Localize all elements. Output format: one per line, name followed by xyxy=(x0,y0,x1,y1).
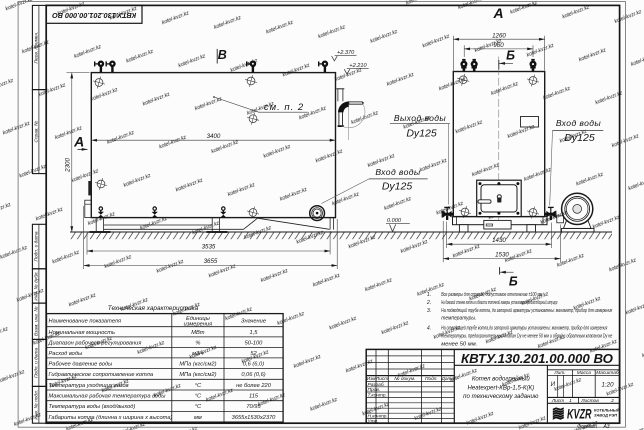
svg-text:Формат: Формат xyxy=(577,424,597,430)
svg-text:50-100: 50-100 xyxy=(245,340,264,346)
svg-text:И: И xyxy=(551,381,556,388)
svg-text:960: 960 xyxy=(493,42,504,49)
svg-text:3400: 3400 xyxy=(207,133,221,140)
svg-text:Температура воды (вход/выход): Температура воды (вход/выход) xyxy=(49,404,136,410)
svg-text:температуры, предохранительный: температуры, предохранительный клапан Dу… xyxy=(441,332,612,339)
svg-text:1: 1 xyxy=(569,398,572,404)
svg-text:Гидравлическое сопротивление к: Гидравлическое сопротивление котла xyxy=(49,372,154,378)
svg-text:Вход воды: Вход воды xyxy=(375,167,421,177)
svg-text:Подп.: Подп. xyxy=(425,376,438,382)
svg-text:МВт: МВт xyxy=(191,330,205,336)
svg-text:измерения: измерения xyxy=(184,322,212,328)
svg-text:Котел водогрейный: Котел водогрейный xyxy=(472,375,531,382)
svg-text:1:20: 1:20 xyxy=(601,381,614,388)
svg-text:Dy125: Dy125 xyxy=(564,132,595,144)
svg-text:Утв.: Утв. xyxy=(368,419,379,425)
svg-text:Лист: Лист xyxy=(551,398,564,404)
svg-text:Н.контр.: Н.контр. xyxy=(368,413,388,419)
svg-text:Значение: Значение xyxy=(241,319,266,325)
svg-text:°С: °С xyxy=(195,394,202,400)
svg-text:Листов: Листов xyxy=(580,398,599,404)
svg-text:Рабочее давление воды: Рабочее давление воды xyxy=(49,361,114,367)
svg-text:Лист: Лист xyxy=(375,376,388,382)
svg-text:0,06 (0,6): 0,06 (0,6) xyxy=(241,372,265,378)
svg-text:Максимальная рабочая температу: Максимальная рабочая температура воды xyxy=(49,394,167,400)
svg-text:1.: 1. xyxy=(427,292,431,298)
svg-text:Выход воды: Выход воды xyxy=(394,113,447,123)
svg-text:Heatexpert-КВр-1,5-К(К): Heatexpert-КВр-1,5-К(К) xyxy=(467,384,534,391)
svg-text:Пров.: Пров. xyxy=(368,387,381,393)
svg-text:Масштаб: Масштаб xyxy=(596,370,619,376)
svg-text:Диапазон рабочего регулировани: Диапазон рабочего регулирования xyxy=(48,340,142,346)
svg-text:3655: 3655 xyxy=(204,258,218,265)
svg-text:Температура уходящих газов: Температура уходящих газов xyxy=(49,383,129,389)
svg-text:2300: 2300 xyxy=(65,158,72,173)
svg-text:не более 220: не более 220 xyxy=(236,383,272,389)
svg-text:Лит.: Лит. xyxy=(553,370,565,376)
svg-text:Все размеры для справок, допус: Все размеры для справок, допустимое откл… xyxy=(441,292,543,298)
svg-text:А: А xyxy=(493,5,504,21)
svg-text:Подп. и дата: Подп. и дата xyxy=(33,348,39,378)
svg-text:менее 50 мм.: менее 50 мм. xyxy=(441,341,477,347)
svg-text:мм: мм xyxy=(194,415,202,421)
svg-text:°С: °С xyxy=(195,383,202,389)
svg-text:Номинальная мощность: Номинальная мощность xyxy=(49,330,115,336)
svg-text:м3/ч: м3/ч xyxy=(192,351,204,357)
svg-text:по техническому заданию: по техническому заданию xyxy=(463,393,539,400)
svg-text:1,5: 1,5 xyxy=(250,330,259,336)
svg-text:Расход воды: Расход воды xyxy=(49,351,83,357)
svg-text:Инв. № дубл.: Инв. № дубл. xyxy=(33,271,39,301)
svg-text:1260: 1260 xyxy=(492,32,506,39)
svg-text:Б: Б xyxy=(509,275,518,289)
svg-text:температуры.: температуры. xyxy=(441,316,476,322)
svg-text:На отводящей трубе котла,до за: На отводящей трубе котла,до запорной арм… xyxy=(441,325,607,332)
svg-text:3.: 3. xyxy=(427,308,431,314)
svg-text:На подводящий трубе котла, д: На подводящий трубе котла, до запорной а… xyxy=(441,307,612,314)
svg-text:Вход воды: Вход воды xyxy=(556,118,602,128)
svg-text:Габариты котла (длинна х ширин: Габариты котла (длинна х ширина х высота… xyxy=(49,415,173,421)
svg-text:Подп. и дата: Подп. и дата xyxy=(33,231,39,261)
svg-text:Т.контр.: Т.контр. xyxy=(368,393,387,399)
svg-text:3535: 3535 xyxy=(202,244,216,251)
svg-text:2: 2 xyxy=(610,398,614,404)
svg-text:Изм: Изм xyxy=(367,376,377,382)
svg-text:Dy125: Dy125 xyxy=(382,180,413,192)
svg-text:°С: °С xyxy=(195,404,202,410)
svg-text:КВТУ.130.201.00.000 ВО: КВТУ.130.201.00.000 ВО xyxy=(461,352,613,366)
svg-text:Б: Б xyxy=(506,49,515,63)
svg-text:см. п. 2: см. п. 2 xyxy=(264,102,304,113)
svg-text:№ докум.: № докум. xyxy=(394,376,415,382)
svg-text:В: В xyxy=(218,48,227,62)
svg-text:70/95: 70/95 xyxy=(246,404,261,410)
svg-text:Справ. №: Справ. № xyxy=(33,121,39,143)
svg-text:2.: 2. xyxy=(426,300,431,306)
svg-text:А3: А3 xyxy=(602,424,609,430)
svg-text:Дата: Дата xyxy=(440,376,454,382)
svg-text:На боковой стенке котла в обла: На боковой стенке котла в области топочн… xyxy=(441,299,557,306)
svg-text:Перв. примен.: Перв. примен. xyxy=(33,32,39,64)
svg-text:Техническая характеристика: Техническая характеристика xyxy=(108,305,199,312)
svg-text:0,6 (6,0): 0,6 (6,0) xyxy=(243,361,264,367)
svg-text:3655х1530х2370: 3655х1530х2370 xyxy=(232,415,276,421)
svg-text:ЗАВОД РЭП: ЗАВОД РЭП xyxy=(594,413,617,418)
svg-text:Разраб.: Разраб. xyxy=(368,382,385,388)
svg-text:4.: 4. xyxy=(427,326,431,332)
svg-text:1530: 1530 xyxy=(495,252,509,259)
svg-text:115: 115 xyxy=(249,394,259,400)
svg-text:Наименование показателя: Наименование показателя xyxy=(49,319,122,325)
svg-text:МПа (кгс/см2): МПа (кгс/см2) xyxy=(179,372,216,378)
svg-text:52: 52 xyxy=(250,351,257,357)
svg-text:KVZR: KVZR xyxy=(567,407,592,422)
svg-text:%: % xyxy=(195,340,200,346)
svg-text:Dy125: Dy125 xyxy=(406,128,437,140)
svg-text:КВТУ.130.201.00.000 ВО: КВТУ.130.201.00.000 ВО xyxy=(52,11,136,20)
svg-text:МПа (кгс/см2): МПа (кгс/см2) xyxy=(179,361,216,367)
svg-text:А: А xyxy=(73,133,84,149)
svg-text:Инв. № подл.: Инв. № подл. xyxy=(33,390,39,420)
svg-text:Масса: Масса xyxy=(577,370,592,376)
svg-text:1430: 1430 xyxy=(492,237,506,244)
svg-text:Взам. инв. №: Взам. инв. № xyxy=(33,306,39,336)
